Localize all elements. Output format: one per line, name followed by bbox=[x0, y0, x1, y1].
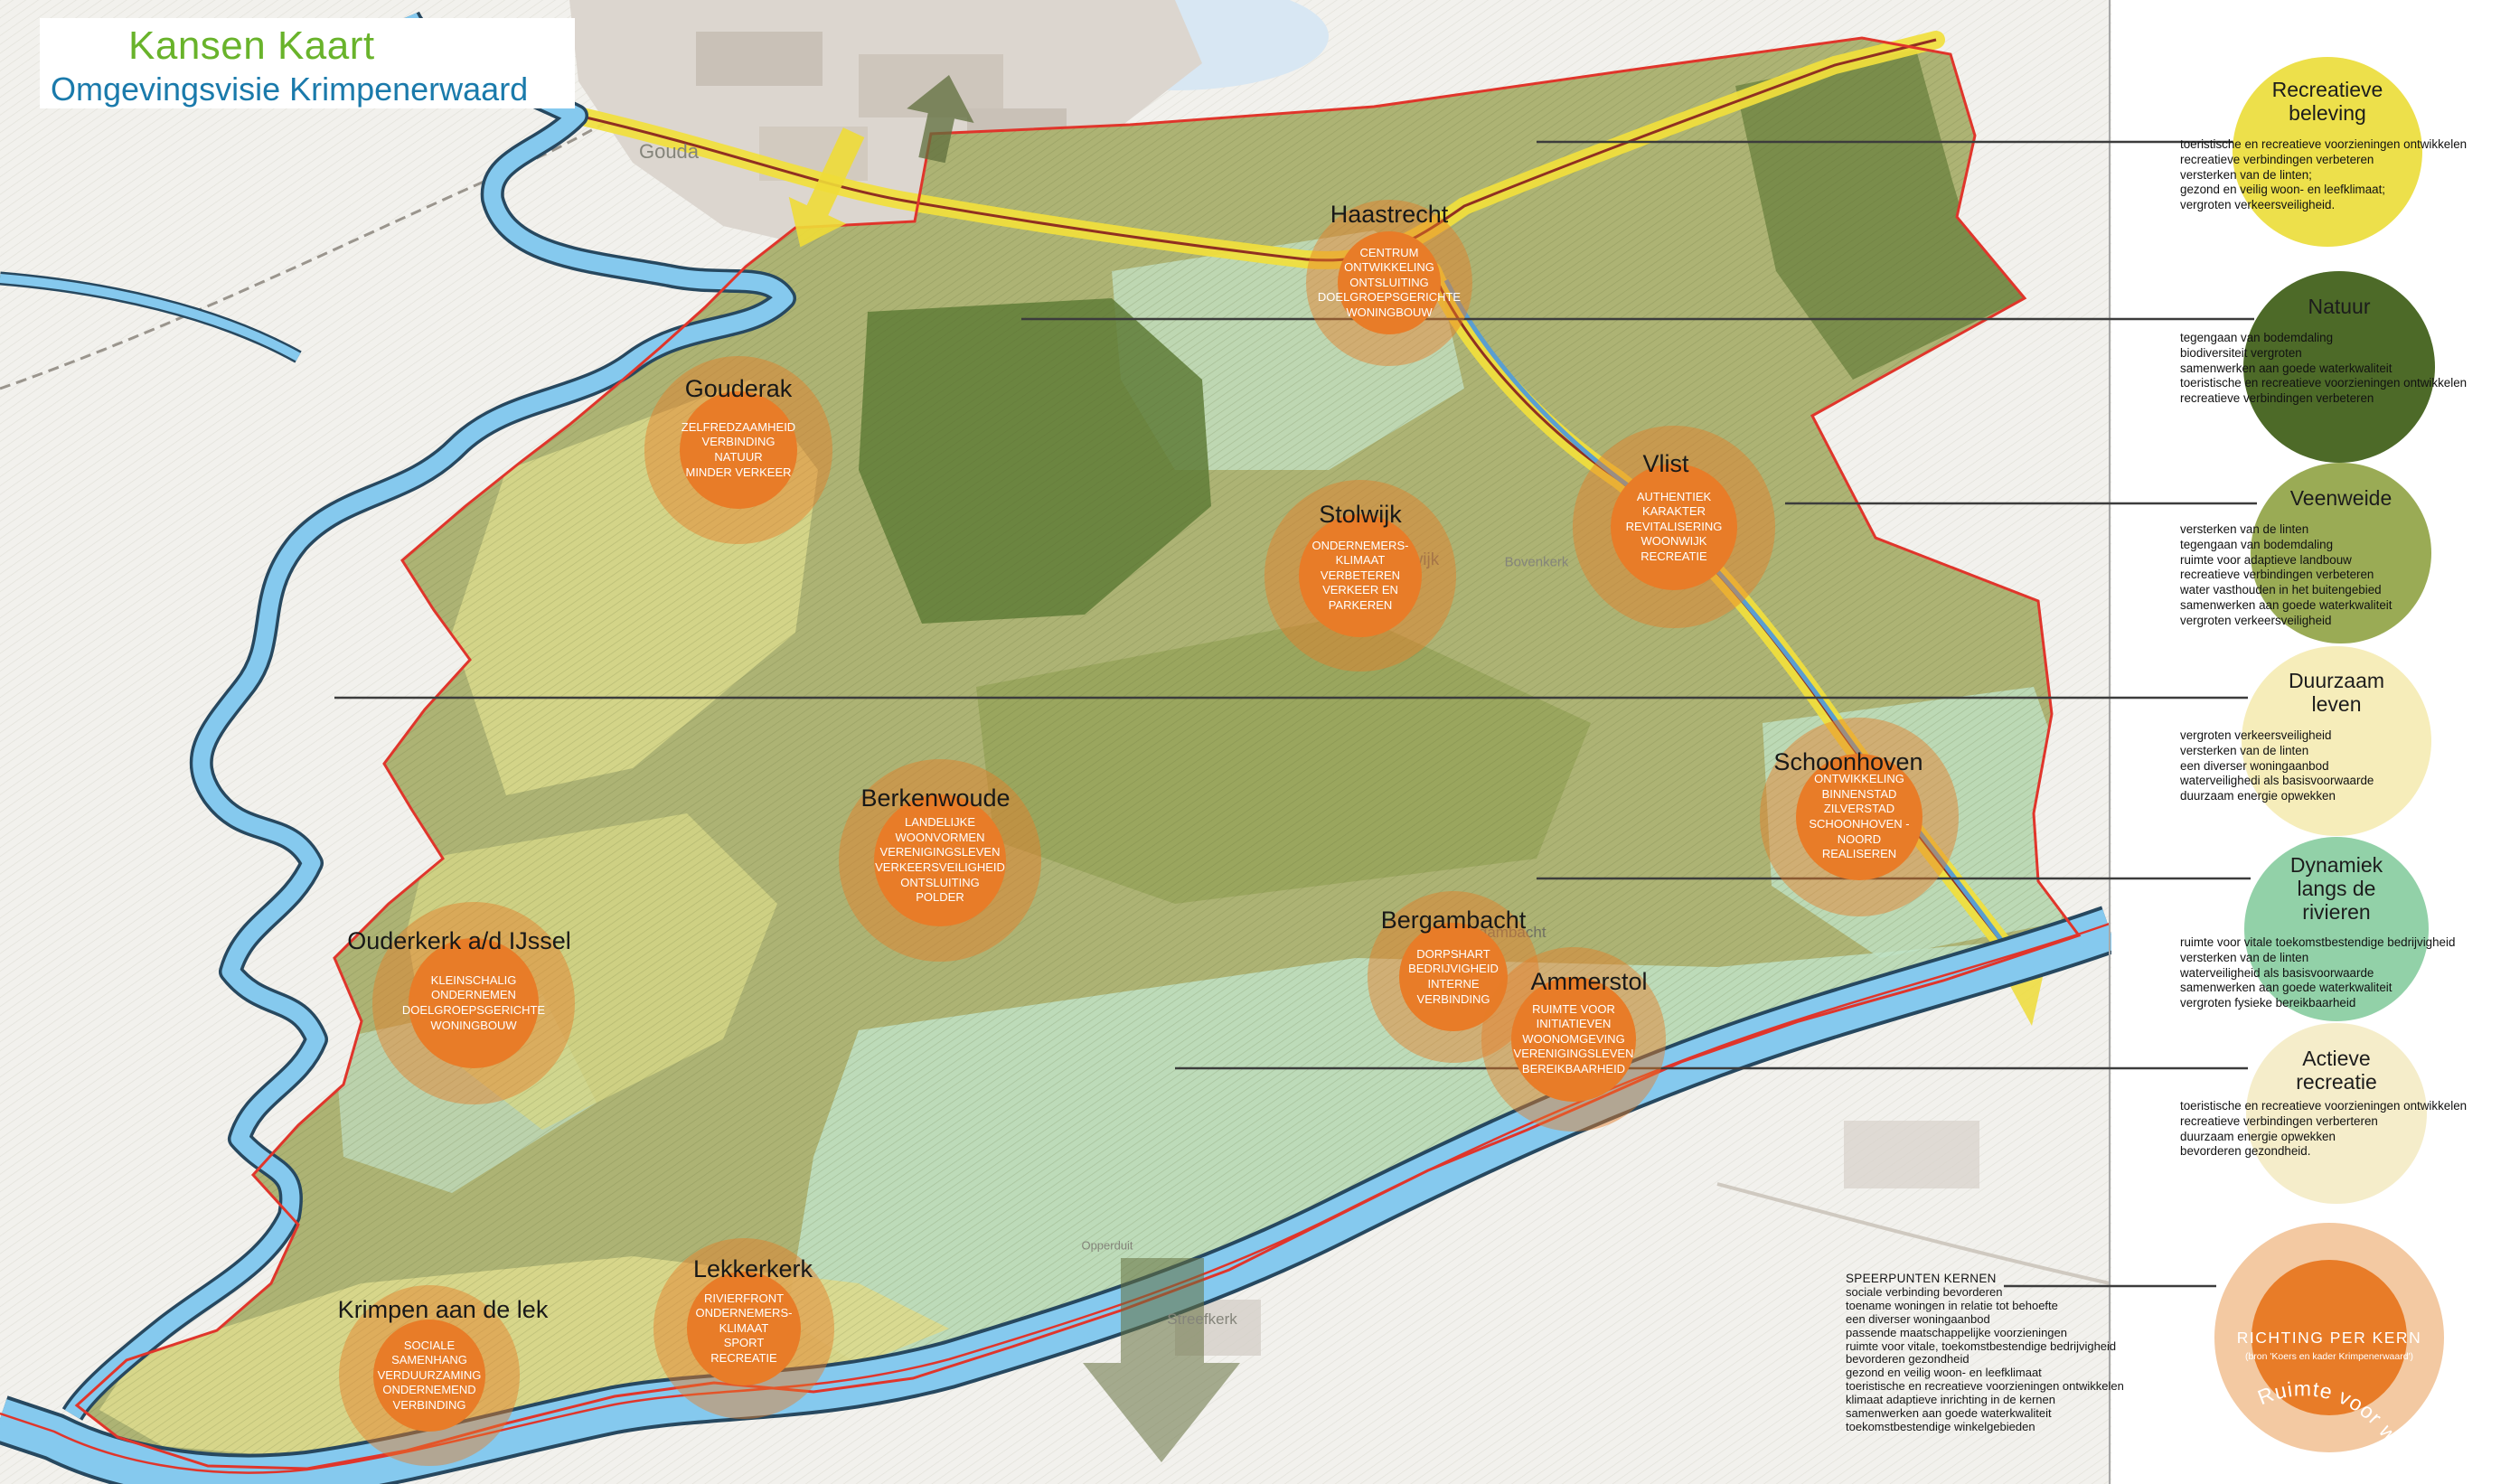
legend-title-duurzaam-leven: Duurzaam leven bbox=[2228, 669, 2445, 716]
map-label-bovenkerk: Bovenkerk bbox=[1505, 555, 1569, 570]
town-label-krimpen-aan-de-lek: Krimpen aan de lek bbox=[338, 1296, 549, 1324]
map-canvas bbox=[0, 0, 2510, 1484]
marker-circle: KLEINSCHALIG ONDERNEMEN DOELGROEPSGERICH… bbox=[409, 938, 539, 1068]
speerpunten-block: SPEERPUNTEN KERNEN sociale verbinding be… bbox=[1846, 1273, 2124, 1434]
map-label-gouda: Gouda bbox=[639, 140, 699, 164]
legend-items-recreatieve-beleving: toeristische en recreatieve voorzieninge… bbox=[2180, 137, 2467, 213]
town-label-lekkerkerk: Lekkerkerk bbox=[693, 1255, 813, 1283]
legend-title-veenweide: Veenweide bbox=[2233, 486, 2449, 510]
page-title: Kansen Kaart bbox=[128, 23, 375, 69]
town-opportunities: AUTHENTIEK KARAKTER REVITALISERING WOONW… bbox=[1611, 490, 1737, 565]
legend-items-dynamiek: ruimte voor vitale toekomstbestendige be… bbox=[2180, 935, 2455, 1011]
town-label-gouderak: Gouderak bbox=[685, 375, 793, 403]
richting-per-kern-badge: Ruimte voor wonen en werken in de buurt … bbox=[2194, 1202, 2465, 1473]
kansenkaart-poster: Kansen Kaart Omgevingsvisie Krimpenerwaa… bbox=[0, 0, 2510, 1484]
town-label-schoonhoven: Schoonhoven bbox=[1773, 748, 1922, 776]
title-box: Kansen Kaart Omgevingsvisie Krimpenerwaa… bbox=[40, 18, 575, 108]
speerpunten-title: SPEERPUNTEN KERNEN bbox=[1846, 1273, 2124, 1286]
marker-circle: SOCIALE SAMENHANG VERDUURZAMING ONDERNEM… bbox=[373, 1320, 485, 1432]
ring-source: (bron 'Koers en kader Krimpenerwaard') bbox=[2245, 1351, 2413, 1362]
town-opportunities: KLEINSCHALIG ONDERNEMEN DOELGROEPSGERICH… bbox=[402, 973, 545, 1033]
town-label-berkenwoude: Berkenwoude bbox=[860, 784, 1010, 812]
page-subtitle: Omgevingsvisie Krimpenerwaard bbox=[51, 70, 528, 108]
legend-title-recreatieve-beleving: Recreatieve beleving bbox=[2219, 78, 2436, 125]
town-opportunities: CENTRUM ONTWIKKELING ONTSLUITING DOELGRO… bbox=[1318, 246, 1461, 321]
town-marker-schoonhoven: ONTWIKKELING BINNENSTAD ZILVERSTAD SCHOO… bbox=[1760, 718, 1959, 916]
map-label-opperduit: Opperduit bbox=[1081, 1239, 1133, 1253]
town-opportunities: ONDERNEMERS- KLIMAAT VERBETEREN VERKEER … bbox=[1299, 539, 1422, 614]
town-opportunities: RUIMTE VOOR INITIATIEVEN WOONOMGEVING VE… bbox=[1511, 1002, 1636, 1077]
town-label-ouderkerk: Ouderkerk a/d IJssel bbox=[347, 927, 571, 955]
town-opportunities: LANDELIJKE WOONVORMEN VERENIGINGSLEVEN V… bbox=[874, 815, 1006, 906]
town-opportunities: ONTWIKKELING BINNENSTAD ZILVERSTAD SCHOO… bbox=[1796, 772, 1922, 862]
legend-items-veenweide: versterken van de linten tegengaan van b… bbox=[2180, 522, 2392, 629]
town-label-ammerstol: Ammerstol bbox=[1530, 968, 1647, 996]
town-opportunities: RIVIERFRONT ONDERNEMERS- KLIMAAT SPORT R… bbox=[687, 1291, 801, 1367]
speerpunten-items: sociale verbinding bevorderen toename wo… bbox=[1846, 1286, 2124, 1434]
marker-circle: LANDELIJKE WOONVORMEN VERENIGINGSLEVEN V… bbox=[874, 794, 1006, 926]
marker-circle: CENTRUM ONTWIKKELING ONTSLUITING DOELGRO… bbox=[1338, 231, 1441, 334]
marker-circle: AUTHENTIEK KARAKTER REVITALISERING WOONW… bbox=[1611, 464, 1737, 590]
town-opportunities: ZELFREDZAAMHEID VERBINDING NATUUR MINDER… bbox=[680, 420, 797, 480]
town-opportunities: SOCIALE SAMENHANG VERDUURZAMING ONDERNEM… bbox=[373, 1338, 485, 1414]
legend-title-dynamiek: Dynamiek langs de rivieren bbox=[2228, 853, 2445, 924]
legend-title-actieve-recreatie: Actieve recreatie bbox=[2228, 1047, 2445, 1094]
legend-items-natuur: tegengaan van bodemdaling biodiversiteit… bbox=[2180, 331, 2467, 407]
ring-label: RICHTING PER KERN bbox=[2237, 1329, 2421, 1347]
town-label-bergambacht: Bergambacht bbox=[1381, 906, 1527, 935]
town-label-stolwijk: Stolwijk bbox=[1319, 501, 1402, 529]
urban-south-bank bbox=[1844, 1121, 1979, 1188]
marker-circle: ZELFREDZAAMHEID VERBINDING NATUUR MINDER… bbox=[680, 391, 797, 509]
legend-items-duurzaam-leven: vergroten verkeersveiligheid versterken … bbox=[2180, 728, 2374, 804]
map-label-streefkerk: Streefkerk bbox=[1167, 1310, 1236, 1329]
legend-title-natuur: Natuur bbox=[2231, 295, 2448, 318]
town-label-haastrecht: Haastrecht bbox=[1330, 201, 1449, 229]
marker-circle: ONDERNEMERS- KLIMAAT VERBETEREN VERKEER … bbox=[1299, 514, 1422, 637]
town-label-vlist: Vlist bbox=[1642, 450, 1688, 478]
legend-items-actieve-recreatie: toeristische en recreatieve voorzieninge… bbox=[2180, 1099, 2467, 1160]
marker-circle: RIVIERFRONT ONDERNEMERS- KLIMAAT SPORT R… bbox=[687, 1272, 801, 1385]
